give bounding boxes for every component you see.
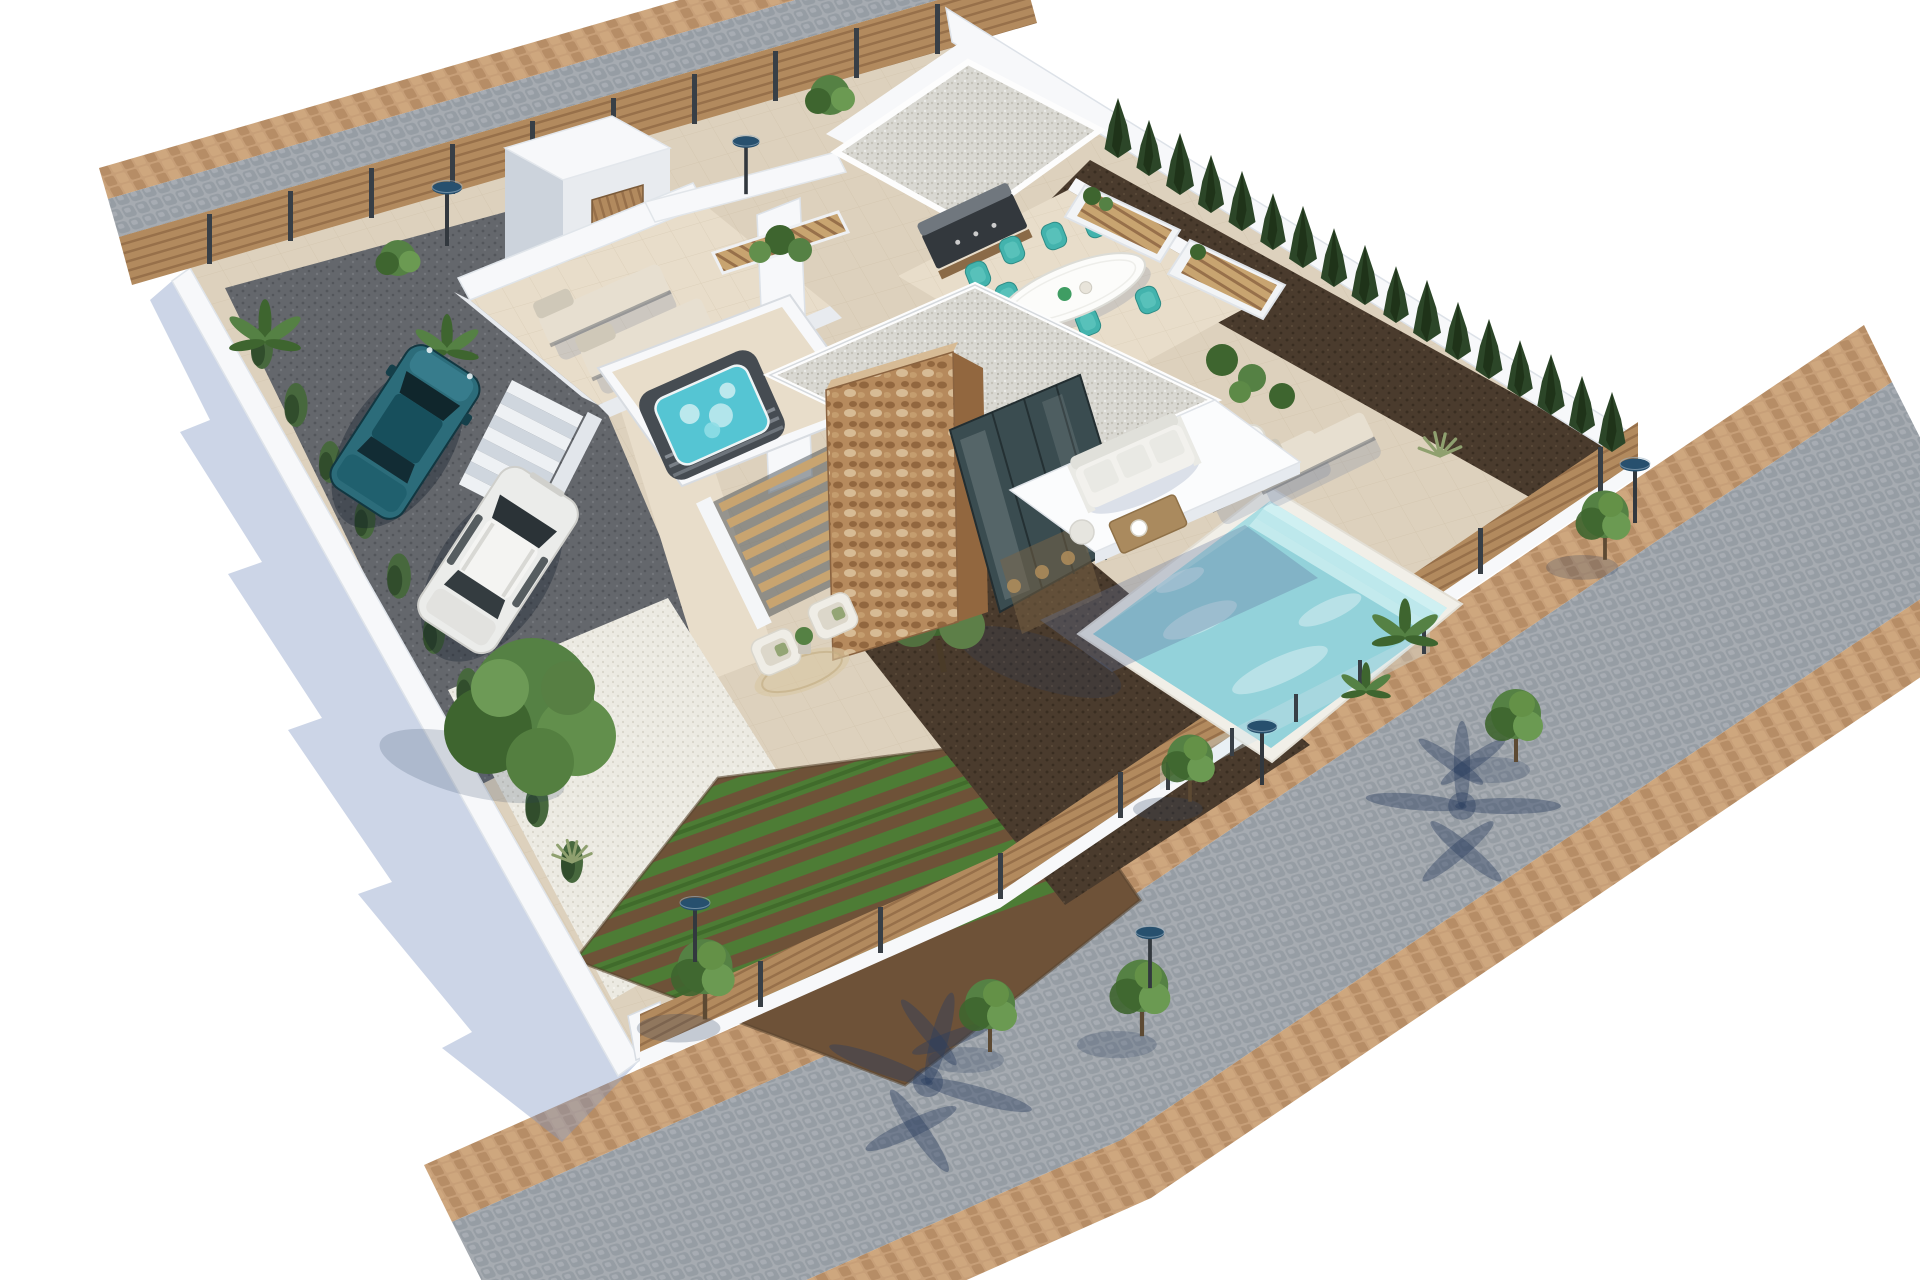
hedge-bush: [387, 553, 411, 598]
interior-chair: [1007, 579, 1021, 593]
pouf: [1070, 520, 1094, 544]
render-canvas: [0, 0, 1920, 1280]
hedge-bush: [284, 383, 307, 427]
interior-chair: [1061, 551, 1075, 565]
interior-chair: [1035, 565, 1049, 579]
villa-aerial-render: [0, 0, 1920, 1280]
